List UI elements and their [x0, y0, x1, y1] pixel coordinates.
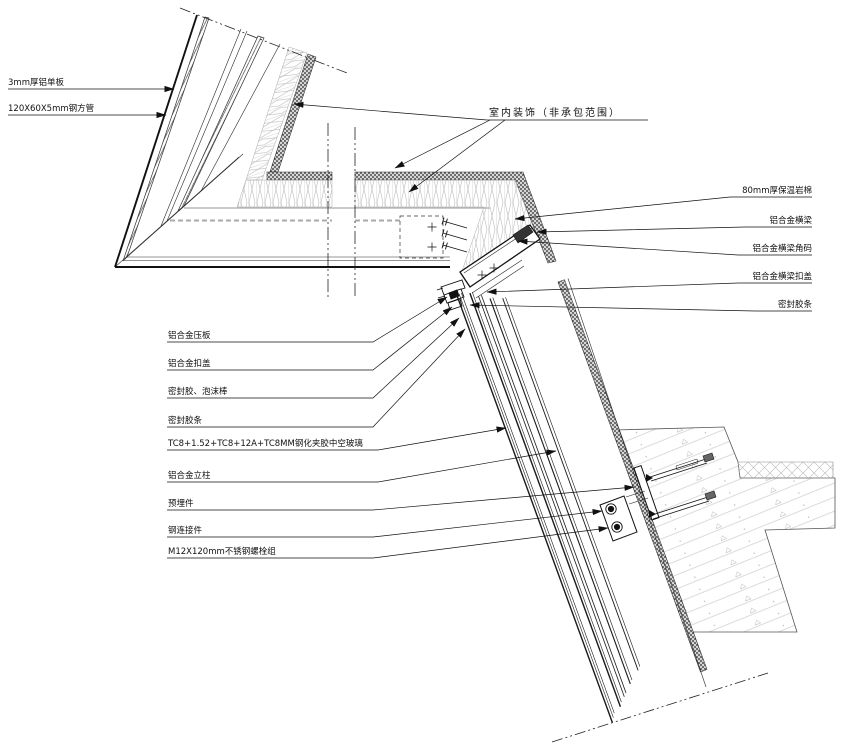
callout-bolt-set: M12X120mm不锈钢螺栓组: [168, 546, 276, 557]
callout-gasket-right: 密封胶条: [778, 299, 813, 310]
detail-drawing-canvas: 3mm厚铝单板 120X60X5mm钢方管 室内装饰（非承包范围） 80mm厚保…: [0, 0, 855, 745]
callout-transom: 铝合金横梁: [769, 215, 812, 226]
callout-aluminum-panel: 3mm厚铝单板: [8, 77, 64, 88]
sloped-aluminum-wall: [115, 15, 316, 267]
callout-transom-cap: 铝合金横梁扣盖: [752, 271, 812, 282]
callout-gasket-left: 密封胶条: [168, 415, 203, 426]
callout-sealant-rod: 密封胶、泡沫棒: [168, 386, 228, 397]
callout-steel-tube: 120X60X5mm钢方管: [8, 103, 94, 114]
callout-steel-connector: 钢连接件: [168, 525, 203, 536]
break-line-bottom: [552, 673, 768, 742]
callout-mullion: 铝合金立柱: [168, 470, 211, 481]
aluminum-panel-line: [115, 15, 197, 267]
self-tapping-screws: [442, 218, 467, 252]
steel-connector-plate: [600, 496, 637, 541]
callout-cap-cover: 铝合金扣盖: [168, 358, 211, 369]
callout-transom-bracket: 铝合金横梁角码: [752, 243, 812, 254]
callout-pressure-plate: 铝合金压板: [168, 330, 211, 341]
curtain-wall-detail-drawing: 3mm厚铝单板 120X60X5mm钢方管 室内装饰（非承包范围） 80mm厚保…: [0, 0, 855, 745]
hidden-beam-outline: [400, 216, 443, 258]
callout-glass-unit: TC8+1.52+TC8+12A+TC8MM钢化夹胶中空玻璃: [167, 438, 363, 449]
concrete-crosshatch-zone: [738, 462, 833, 478]
callout-interior-note: 室内装饰（非承包范围）: [489, 106, 621, 119]
callout-embed-part: 预埋件: [168, 498, 194, 509]
callout-rock-wool: 80mm厚保温岩棉: [742, 185, 812, 196]
ceiling-insulation-left: [237, 180, 332, 207]
ceiling-stipple-band-left: [267, 172, 332, 180]
break-line-top: [180, 8, 347, 73]
concrete-slab: [615, 427, 835, 632]
